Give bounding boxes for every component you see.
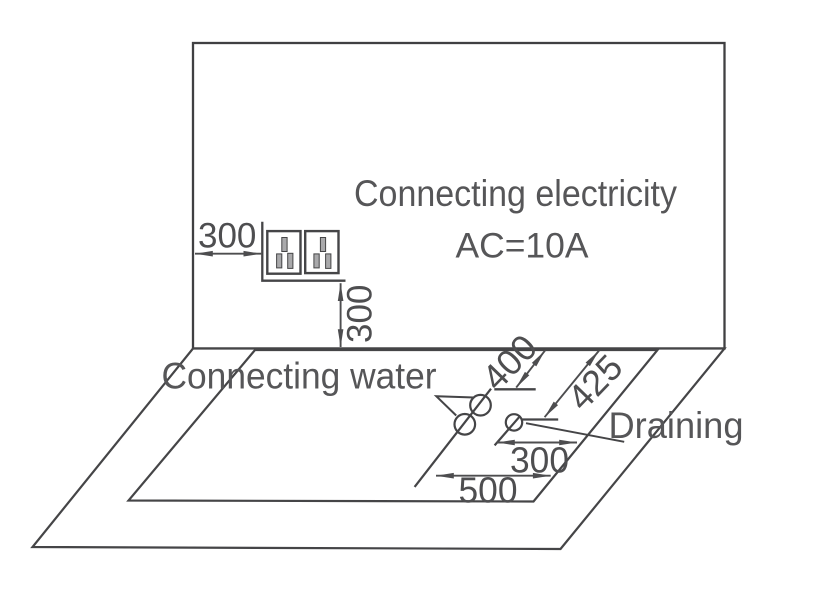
svg-text:Connecting electricity: Connecting electricity [354, 173, 677, 214]
svg-text:300: 300 [510, 440, 569, 481]
svg-text:500: 500 [459, 470, 518, 511]
svg-text:300: 300 [340, 285, 379, 343]
svg-text:Connecting water: Connecting water [162, 356, 437, 397]
svg-text:Draining: Draining [609, 405, 744, 446]
svg-text:AC=10A: AC=10A [456, 226, 589, 266]
svg-text:300: 300 [198, 216, 256, 255]
